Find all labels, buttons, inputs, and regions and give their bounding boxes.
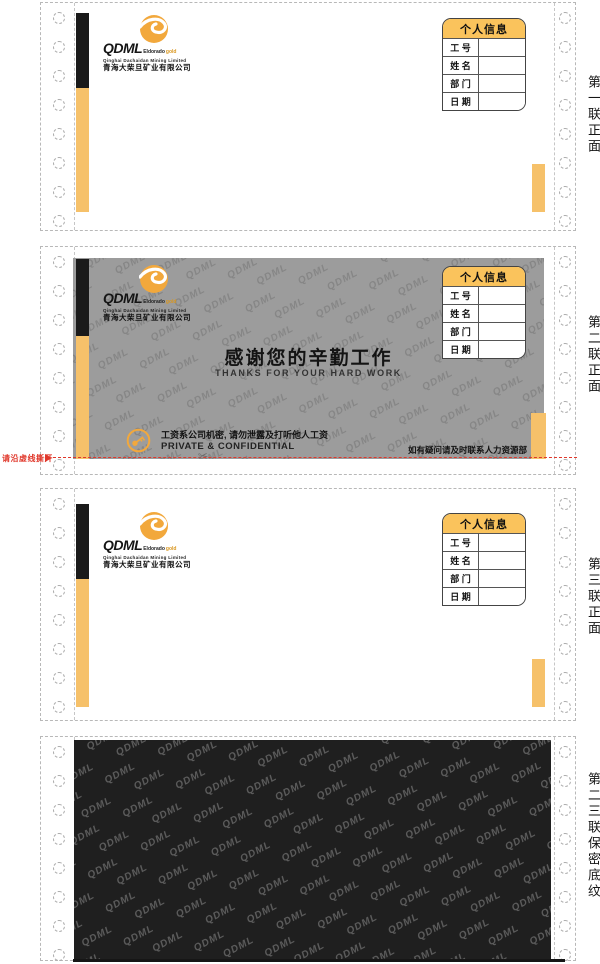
info-value: [479, 57, 525, 74]
punch-hole: [559, 128, 571, 140]
info-label: 日 期: [443, 588, 479, 605]
brand-suffix-gold: gold: [166, 546, 177, 552]
info-label: 工 号: [443, 287, 479, 304]
info-label: 姓 名: [443, 57, 479, 74]
watermark-rows: QDML QDML QDML QDML QDML QDML QDML QDML …: [74, 740, 551, 959]
panel-sheet1-front: QDMLEldoradogold Qinghai Dachaidan Minin…: [40, 2, 576, 231]
brand-suffix-gold: gold: [166, 49, 177, 55]
personal-info-title: 个人信息: [443, 267, 525, 286]
punch-hole: [53, 215, 65, 227]
punch-hole: [53, 99, 65, 111]
info-label: 工 号: [443, 534, 479, 551]
tractor-feed-strip-right: [554, 737, 575, 960]
tractor-feed-strip-left: [41, 247, 75, 474]
print-proof-sheet: QDMLEldoradogold Qinghai Dachaidan Minin…: [0, 0, 600, 964]
punch-hole: [53, 891, 65, 903]
personal-info-title: 个人信息: [443, 514, 525, 533]
punch-hole: [53, 256, 65, 268]
punch-hole: [559, 430, 571, 442]
punch-hole: [559, 401, 571, 413]
punch-hole: [53, 804, 65, 816]
punch-hole: [559, 285, 571, 297]
punch-hole: [559, 556, 571, 568]
tear-line: 请沿虚线撕开 ✂: [2, 451, 577, 467]
punch-hole: [559, 12, 571, 24]
punch-hole: [559, 215, 571, 227]
info-value: [479, 39, 525, 56]
info-value: [479, 75, 525, 92]
info-value: [479, 534, 525, 551]
punch-hole: [53, 833, 65, 845]
watermark-pattern: QDML QDML QDML QDML QDML QDML QDML QDML …: [74, 740, 551, 959]
info-row-name: 姓 名: [443, 56, 525, 74]
punch-hole: [559, 746, 571, 758]
punch-hole: [559, 314, 571, 326]
punch-hole: [53, 949, 65, 961]
spine-yellow-bar: [76, 88, 89, 212]
info-label: 姓 名: [443, 552, 479, 569]
info-row-department: 部 门: [443, 569, 525, 587]
security-black-face: QDML QDML QDML QDML QDML QDML QDML QDML …: [74, 740, 551, 959]
punch-hole: [53, 314, 65, 326]
punch-hole: [559, 157, 571, 169]
info-row-date: 日 期: [443, 92, 525, 110]
info-label: 部 门: [443, 570, 479, 587]
next-sheet-edge: [73, 959, 565, 962]
spine-yellow-bar: [76, 579, 89, 707]
punch-hole: [53, 12, 65, 24]
personal-info-card: 个人信息 工 号 姓 名 部 门 日 期: [442, 18, 526, 111]
punch-hole: [53, 643, 65, 655]
brand-suffix-gold: gold: [166, 299, 177, 305]
punch-hole: [559, 256, 571, 268]
logo-text-block: QDMLEldoradogold Qinghai Dachaidan Minin…: [103, 290, 191, 322]
punch-hole: [559, 833, 571, 845]
tractor-feed-strip-left: [41, 737, 75, 960]
spine-black-bar: [76, 13, 89, 88]
punch-hole: [559, 643, 571, 655]
punch-hole: [559, 775, 571, 787]
punch-hole: [53, 186, 65, 198]
key-icon: [126, 428, 151, 453]
punch-hole: [53, 672, 65, 684]
side-caption-ply3: 第三联正面: [584, 557, 600, 637]
info-label: 日 期: [443, 93, 479, 110]
punch-hole: [53, 343, 65, 355]
info-value: [479, 588, 525, 605]
info-row-date: 日 期: [443, 587, 525, 605]
punch-hole: [53, 430, 65, 442]
info-row-employee-id: 工 号: [443, 38, 525, 56]
brand-suffix: Eldorado: [143, 299, 165, 305]
tear-arrow-icon: [45, 454, 52, 462]
brand-suffix: Eldorado: [143, 49, 165, 55]
punch-hole: [559, 498, 571, 510]
logo-text-block: QDMLEldoradogold Qinghai Dachaidan Minin…: [103, 40, 191, 72]
brand-wordmark: QDML: [103, 40, 142, 56]
tractor-feed-strip-right: [554, 489, 575, 720]
side-caption-security: 第二三联保密底纹: [584, 772, 600, 900]
thanks-headline: 感谢您的辛勤工作: [73, 343, 544, 370]
right-yellow-mark: [532, 164, 545, 212]
side-caption-ply2: 第二联正面: [584, 315, 600, 395]
punch-hole: [53, 614, 65, 626]
punch-hole: [53, 585, 65, 597]
punch-hole: [53, 701, 65, 713]
info-value: [479, 570, 525, 587]
brand-suffix: Eldorado: [143, 546, 165, 552]
info-label: 工 号: [443, 39, 479, 56]
punch-hole: [559, 862, 571, 874]
info-label: 部 门: [443, 323, 479, 340]
punch-hole: [559, 585, 571, 597]
punch-hole: [53, 41, 65, 53]
punch-hole: [559, 186, 571, 198]
personal-info-title: 个人信息: [443, 19, 525, 38]
tractor-feed-strip-right: [554, 247, 575, 474]
logo-text-block: QDMLEldoradogold Qinghai Dachaidan Minin…: [103, 537, 191, 569]
tractor-feed-strip-right: [554, 3, 575, 230]
thanks-headline-en: THANKS FOR YOUR HARD WORK: [73, 368, 544, 378]
punch-hole: [53, 862, 65, 874]
tractor-feed-strip-left: [41, 3, 75, 230]
scissors-icon: ✂: [197, 448, 209, 463]
info-value: [479, 93, 525, 110]
info-value: [479, 287, 525, 304]
info-row-employee-id: 工 号: [443, 286, 525, 304]
panel-security-tint: QDML QDML QDML QDML QDML QDML QDML QDML …: [40, 736, 576, 961]
company-name-cn: 青海大柴旦矿业有限公司: [103, 314, 191, 323]
punch-hole: [559, 672, 571, 684]
punch-hole: [53, 746, 65, 758]
company-name-cn: 青海大柴旦矿业有限公司: [103, 561, 191, 570]
side-caption-ply1: 第一联正面: [584, 75, 600, 155]
punch-hole: [53, 920, 65, 932]
punch-hole: [559, 920, 571, 932]
confidential-notice: 工资系公司机密, 请勿泄露及打听他人工资 PRIVATE & CONFIDENT…: [161, 430, 328, 453]
punch-hole: [559, 99, 571, 111]
punch-hole: [53, 527, 65, 539]
info-row-name: 姓 名: [443, 304, 525, 322]
punch-hole: [53, 285, 65, 297]
punch-hole: [559, 804, 571, 816]
spine-black-bar: [76, 259, 89, 336]
punch-hole: [559, 527, 571, 539]
punch-hole: [53, 128, 65, 140]
punch-hole: [53, 498, 65, 510]
punch-hole: [53, 157, 65, 169]
info-value: [479, 323, 525, 340]
info-row-name: 姓 名: [443, 551, 525, 569]
confidential-notice-cn: 工资系公司机密, 请勿泄露及打听他人工资: [161, 430, 328, 441]
info-label: 姓 名: [443, 305, 479, 322]
personal-info-card: 个人信息 工 号 姓 名 部 门 日 期: [442, 513, 526, 606]
info-label: 部 门: [443, 75, 479, 92]
punch-hole: [559, 41, 571, 53]
spine-black-bar: [76, 504, 89, 579]
tear-dashed-rule: [53, 457, 577, 458]
punch-hole: [559, 891, 571, 903]
punch-hole: [53, 70, 65, 82]
punch-hole: [53, 401, 65, 413]
punch-hole: [53, 372, 65, 384]
punch-hole: [53, 556, 65, 568]
info-value: [479, 552, 525, 569]
info-row-department: 部 门: [443, 322, 525, 340]
info-row-department: 部 门: [443, 74, 525, 92]
punch-hole: [559, 701, 571, 713]
company-name-cn: 青海大柴旦矿业有限公司: [103, 64, 191, 73]
brand-wordmark: QDML: [103, 290, 142, 306]
punch-hole: [559, 614, 571, 626]
info-value: [479, 305, 525, 322]
tractor-feed-strip-left: [41, 489, 75, 720]
punch-hole: [53, 775, 65, 787]
brand-wordmark: QDML: [103, 537, 142, 553]
punch-hole: [559, 372, 571, 384]
info-row-employee-id: 工 号: [443, 533, 525, 551]
panel-sheet2-front: QDML QDML QDML QDML QDML QDML QDML QDML …: [40, 246, 576, 475]
punch-hole: [559, 70, 571, 82]
punch-hole: [559, 343, 571, 355]
right-yellow-mark: [532, 659, 545, 707]
panel-sheet3-front: QDMLEldoradogold Qinghai Dachaidan Minin…: [40, 488, 576, 721]
